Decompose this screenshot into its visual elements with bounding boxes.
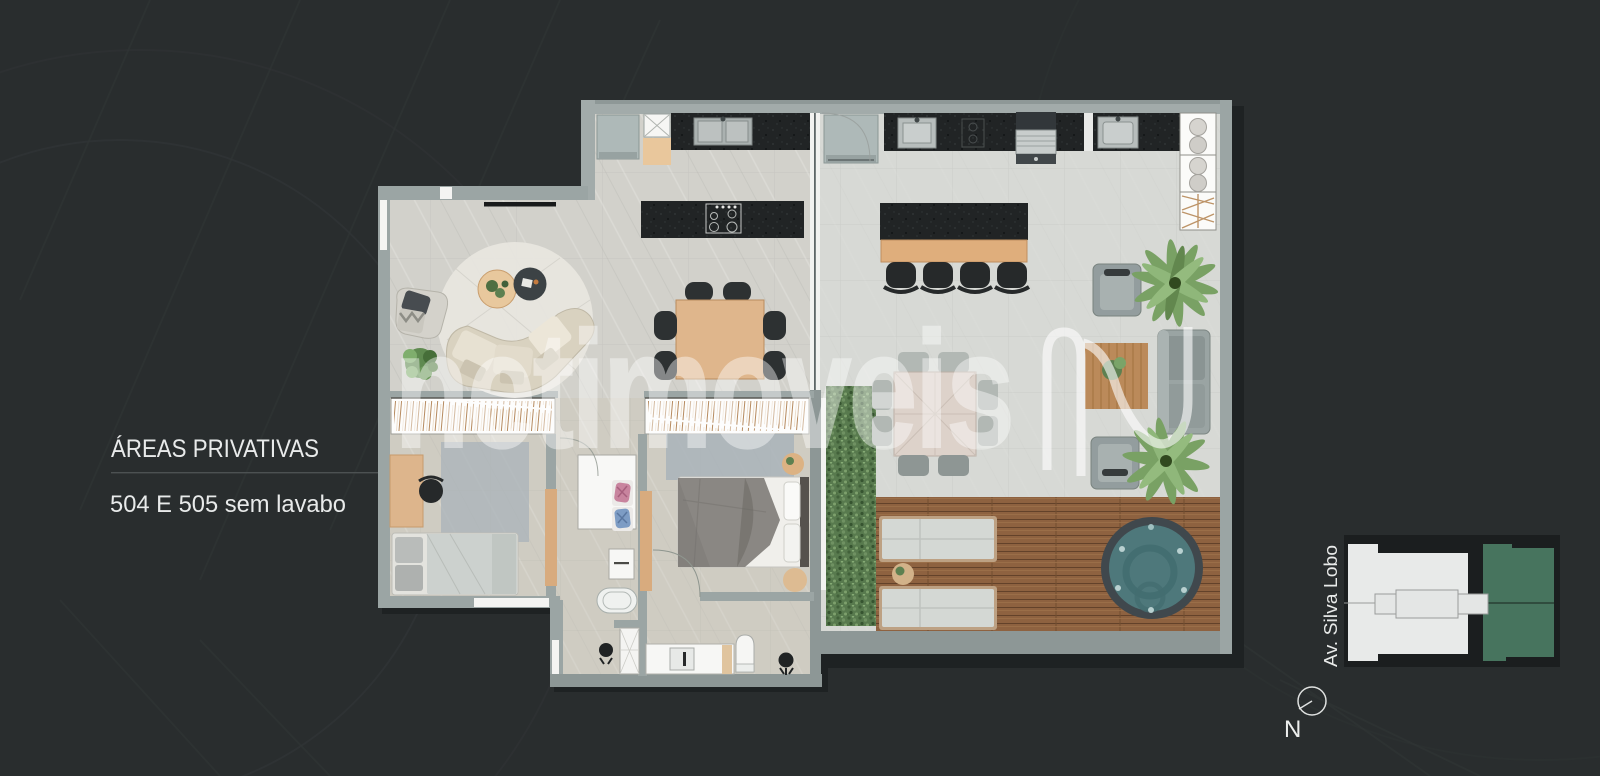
svg-text:504 E 505 sem lavabo: 504 E 505 sem lavabo <box>110 491 346 518</box>
svg-text:N: N <box>1284 716 1301 743</box>
svg-text:ÁREAS PRIVATIVAS: ÁREAS PRIVATIVAS <box>111 434 319 463</box>
svg-text:Av. Silva Lobo: Av. Silva Lobo <box>1321 545 1341 667</box>
svg-text:netimoveis: netimoveis <box>394 298 1012 483</box>
